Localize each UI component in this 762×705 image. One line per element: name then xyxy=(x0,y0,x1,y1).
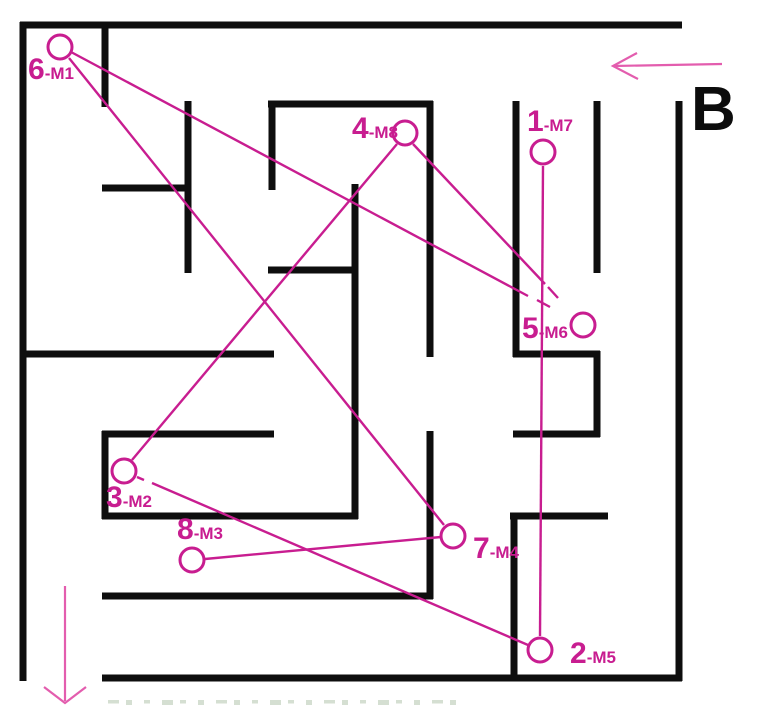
path-line-1-M7-2-M5 xyxy=(540,166,543,636)
caption-mark-12 xyxy=(324,700,335,704)
caption-mark-3 xyxy=(162,700,173,705)
path-line-5-M6-6-M1-dash1 xyxy=(537,300,550,307)
caption-mark-11 xyxy=(306,700,312,705)
marker-circle-7-M4 xyxy=(441,524,465,548)
caption-mark-0 xyxy=(108,700,119,704)
caption-mark-16 xyxy=(396,700,402,704)
maze-figure: 1-M72-M53-M24-M85-M66-M17-M48-M3 B xyxy=(0,0,762,705)
caption-fragment xyxy=(108,700,456,705)
marker-circle-3-M2 xyxy=(112,459,136,483)
entry-arrow-shaft xyxy=(613,64,722,66)
caption-mark-10 xyxy=(288,700,294,704)
caption-mark-19 xyxy=(450,700,456,705)
path-line-2-M5-3-M2 xyxy=(152,483,528,645)
caption-mark-18 xyxy=(432,700,443,704)
path-line-4-M8-5-M6-dash1 xyxy=(548,287,558,298)
caption-mark-9 xyxy=(270,700,281,705)
caption-mark-6 xyxy=(216,700,227,704)
marker-circle-2-M5 xyxy=(528,638,552,662)
marker-label-2-M5: 2-M5 xyxy=(570,637,616,670)
caption-mark-8 xyxy=(252,700,258,704)
marker-label-3-M2: 3-M2 xyxy=(106,481,152,514)
marker-label-4-M8: 4-M8 xyxy=(352,112,398,145)
caption-mark-2 xyxy=(144,700,150,704)
caption-mark-7 xyxy=(234,700,240,705)
caption-mark-15 xyxy=(378,700,389,705)
marker-label-1-M7: 1-M7 xyxy=(527,105,573,138)
caption-mark-14 xyxy=(360,700,366,704)
caption-mark-5 xyxy=(198,700,204,705)
caption-mark-13 xyxy=(342,700,348,705)
marker-circle-8-M3 xyxy=(180,548,204,572)
caption-mark-4 xyxy=(180,700,186,704)
marker-circle-1-M7 xyxy=(531,140,555,164)
maze-svg: 1-M72-M53-M24-M85-M66-M17-M48-M3 B xyxy=(0,0,762,705)
marker-circle-5-M6 xyxy=(571,313,595,337)
caption-mark-1 xyxy=(126,700,132,705)
marker-circle-6-M1 xyxy=(48,35,72,59)
arrows-layer xyxy=(44,53,722,703)
caption-mark-17 xyxy=(414,700,420,705)
marker-label-5-M6: 5-M6 xyxy=(522,312,568,345)
path-line-2-M5-3-M2-dash1 xyxy=(137,477,144,480)
entry-label: B xyxy=(691,75,736,144)
